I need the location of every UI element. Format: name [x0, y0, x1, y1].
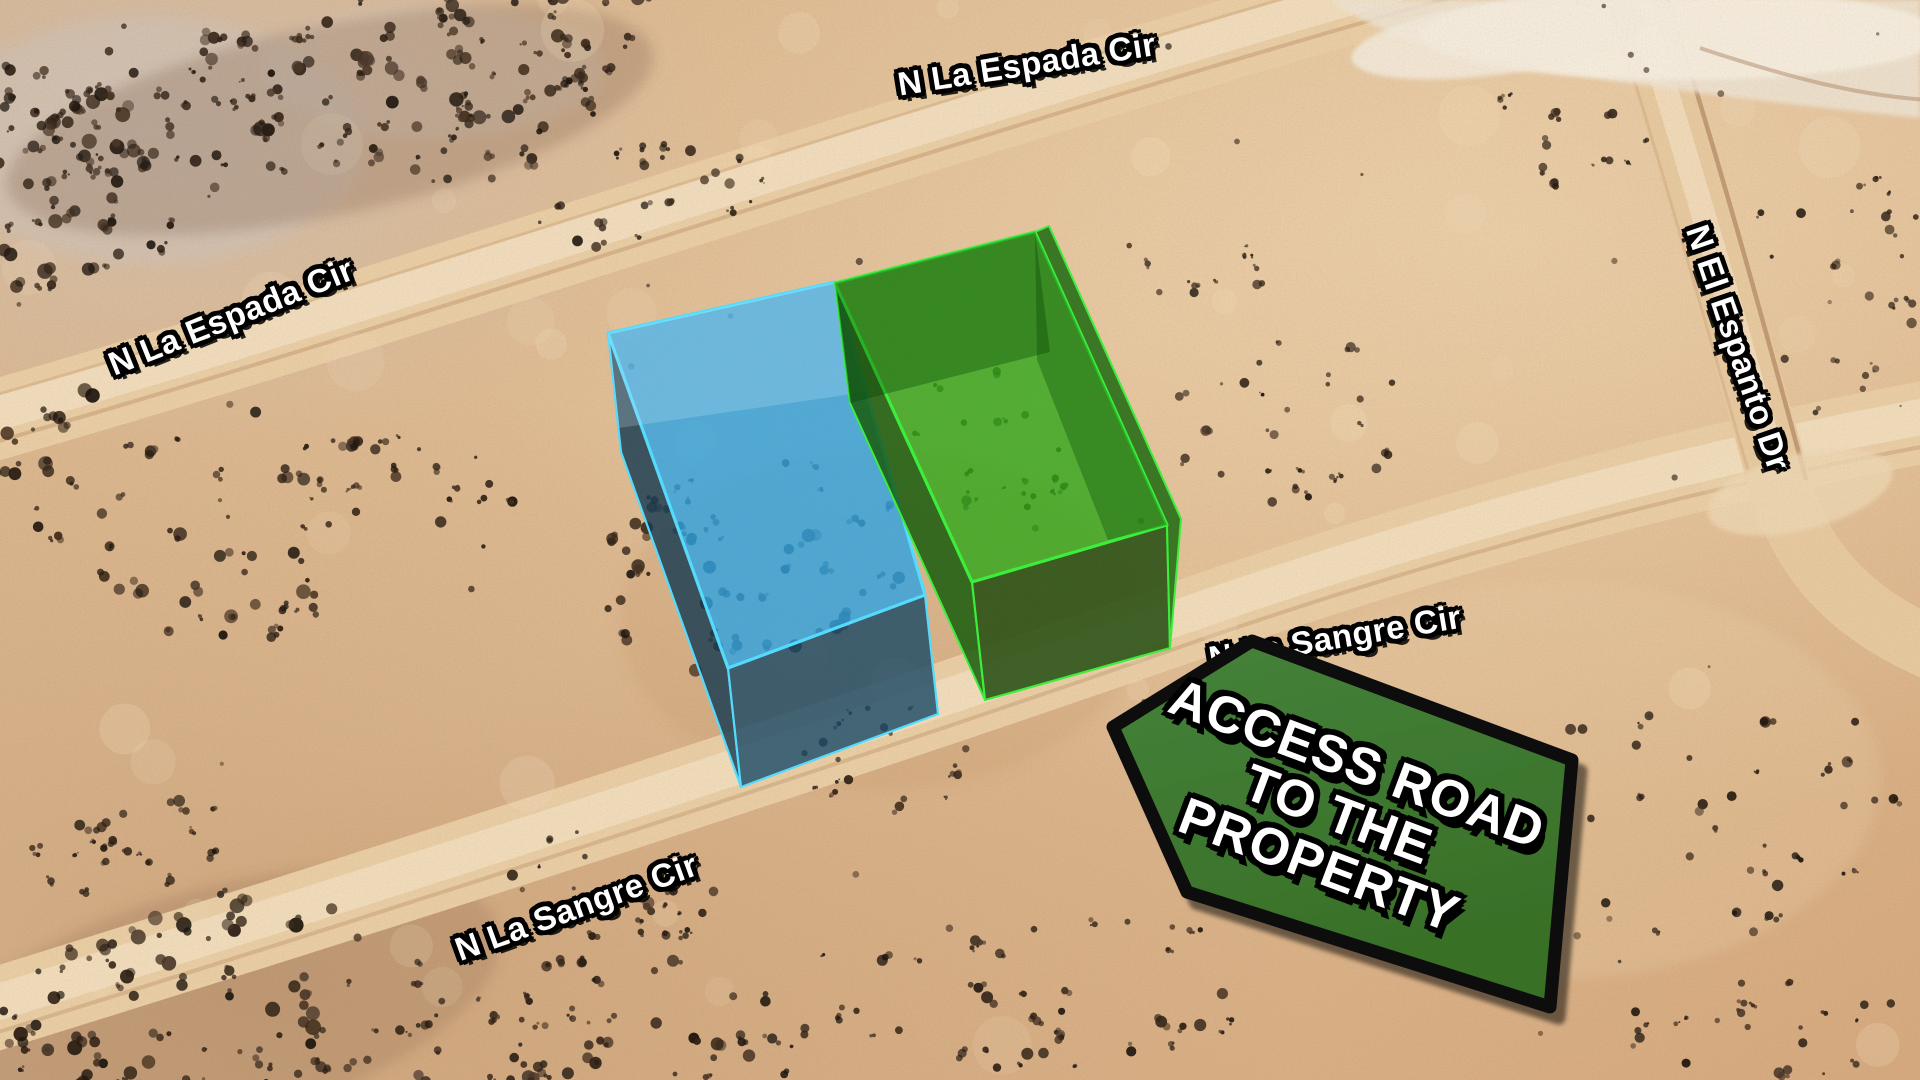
access-road-callout	[0, 0, 1920, 1080]
map-canvas: N La Espada Cir N La Espada Cir N El Esp…	[0, 0, 1920, 1080]
